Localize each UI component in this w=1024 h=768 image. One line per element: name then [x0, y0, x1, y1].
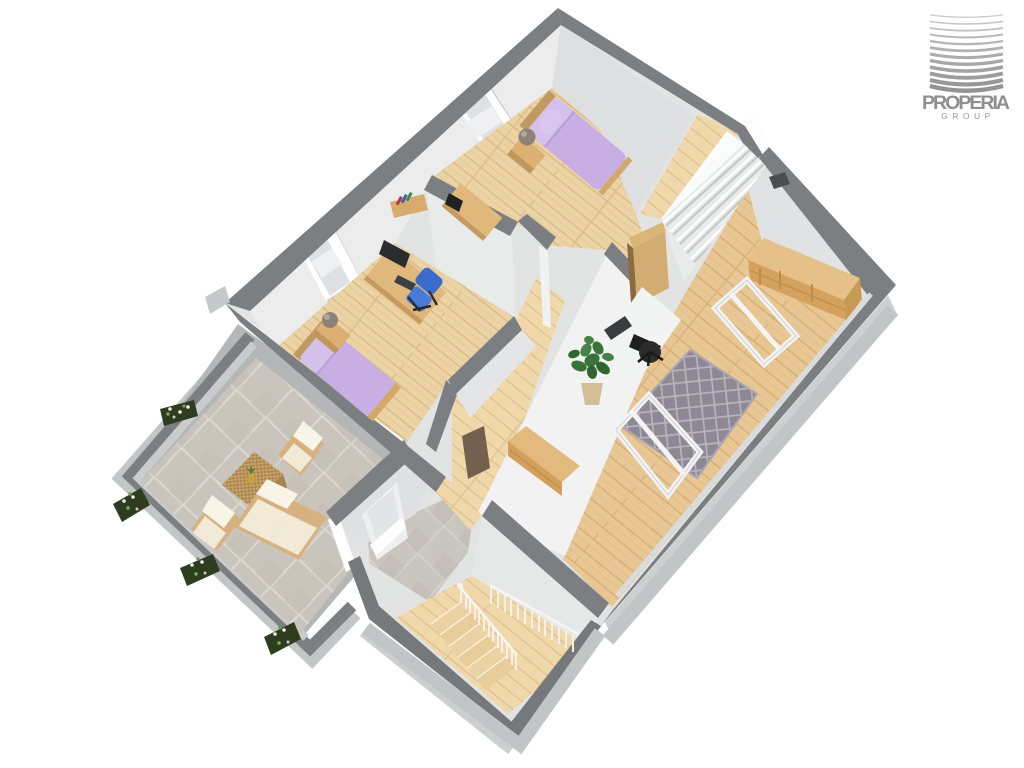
svg-text:GROUP: GROUP	[941, 111, 995, 121]
